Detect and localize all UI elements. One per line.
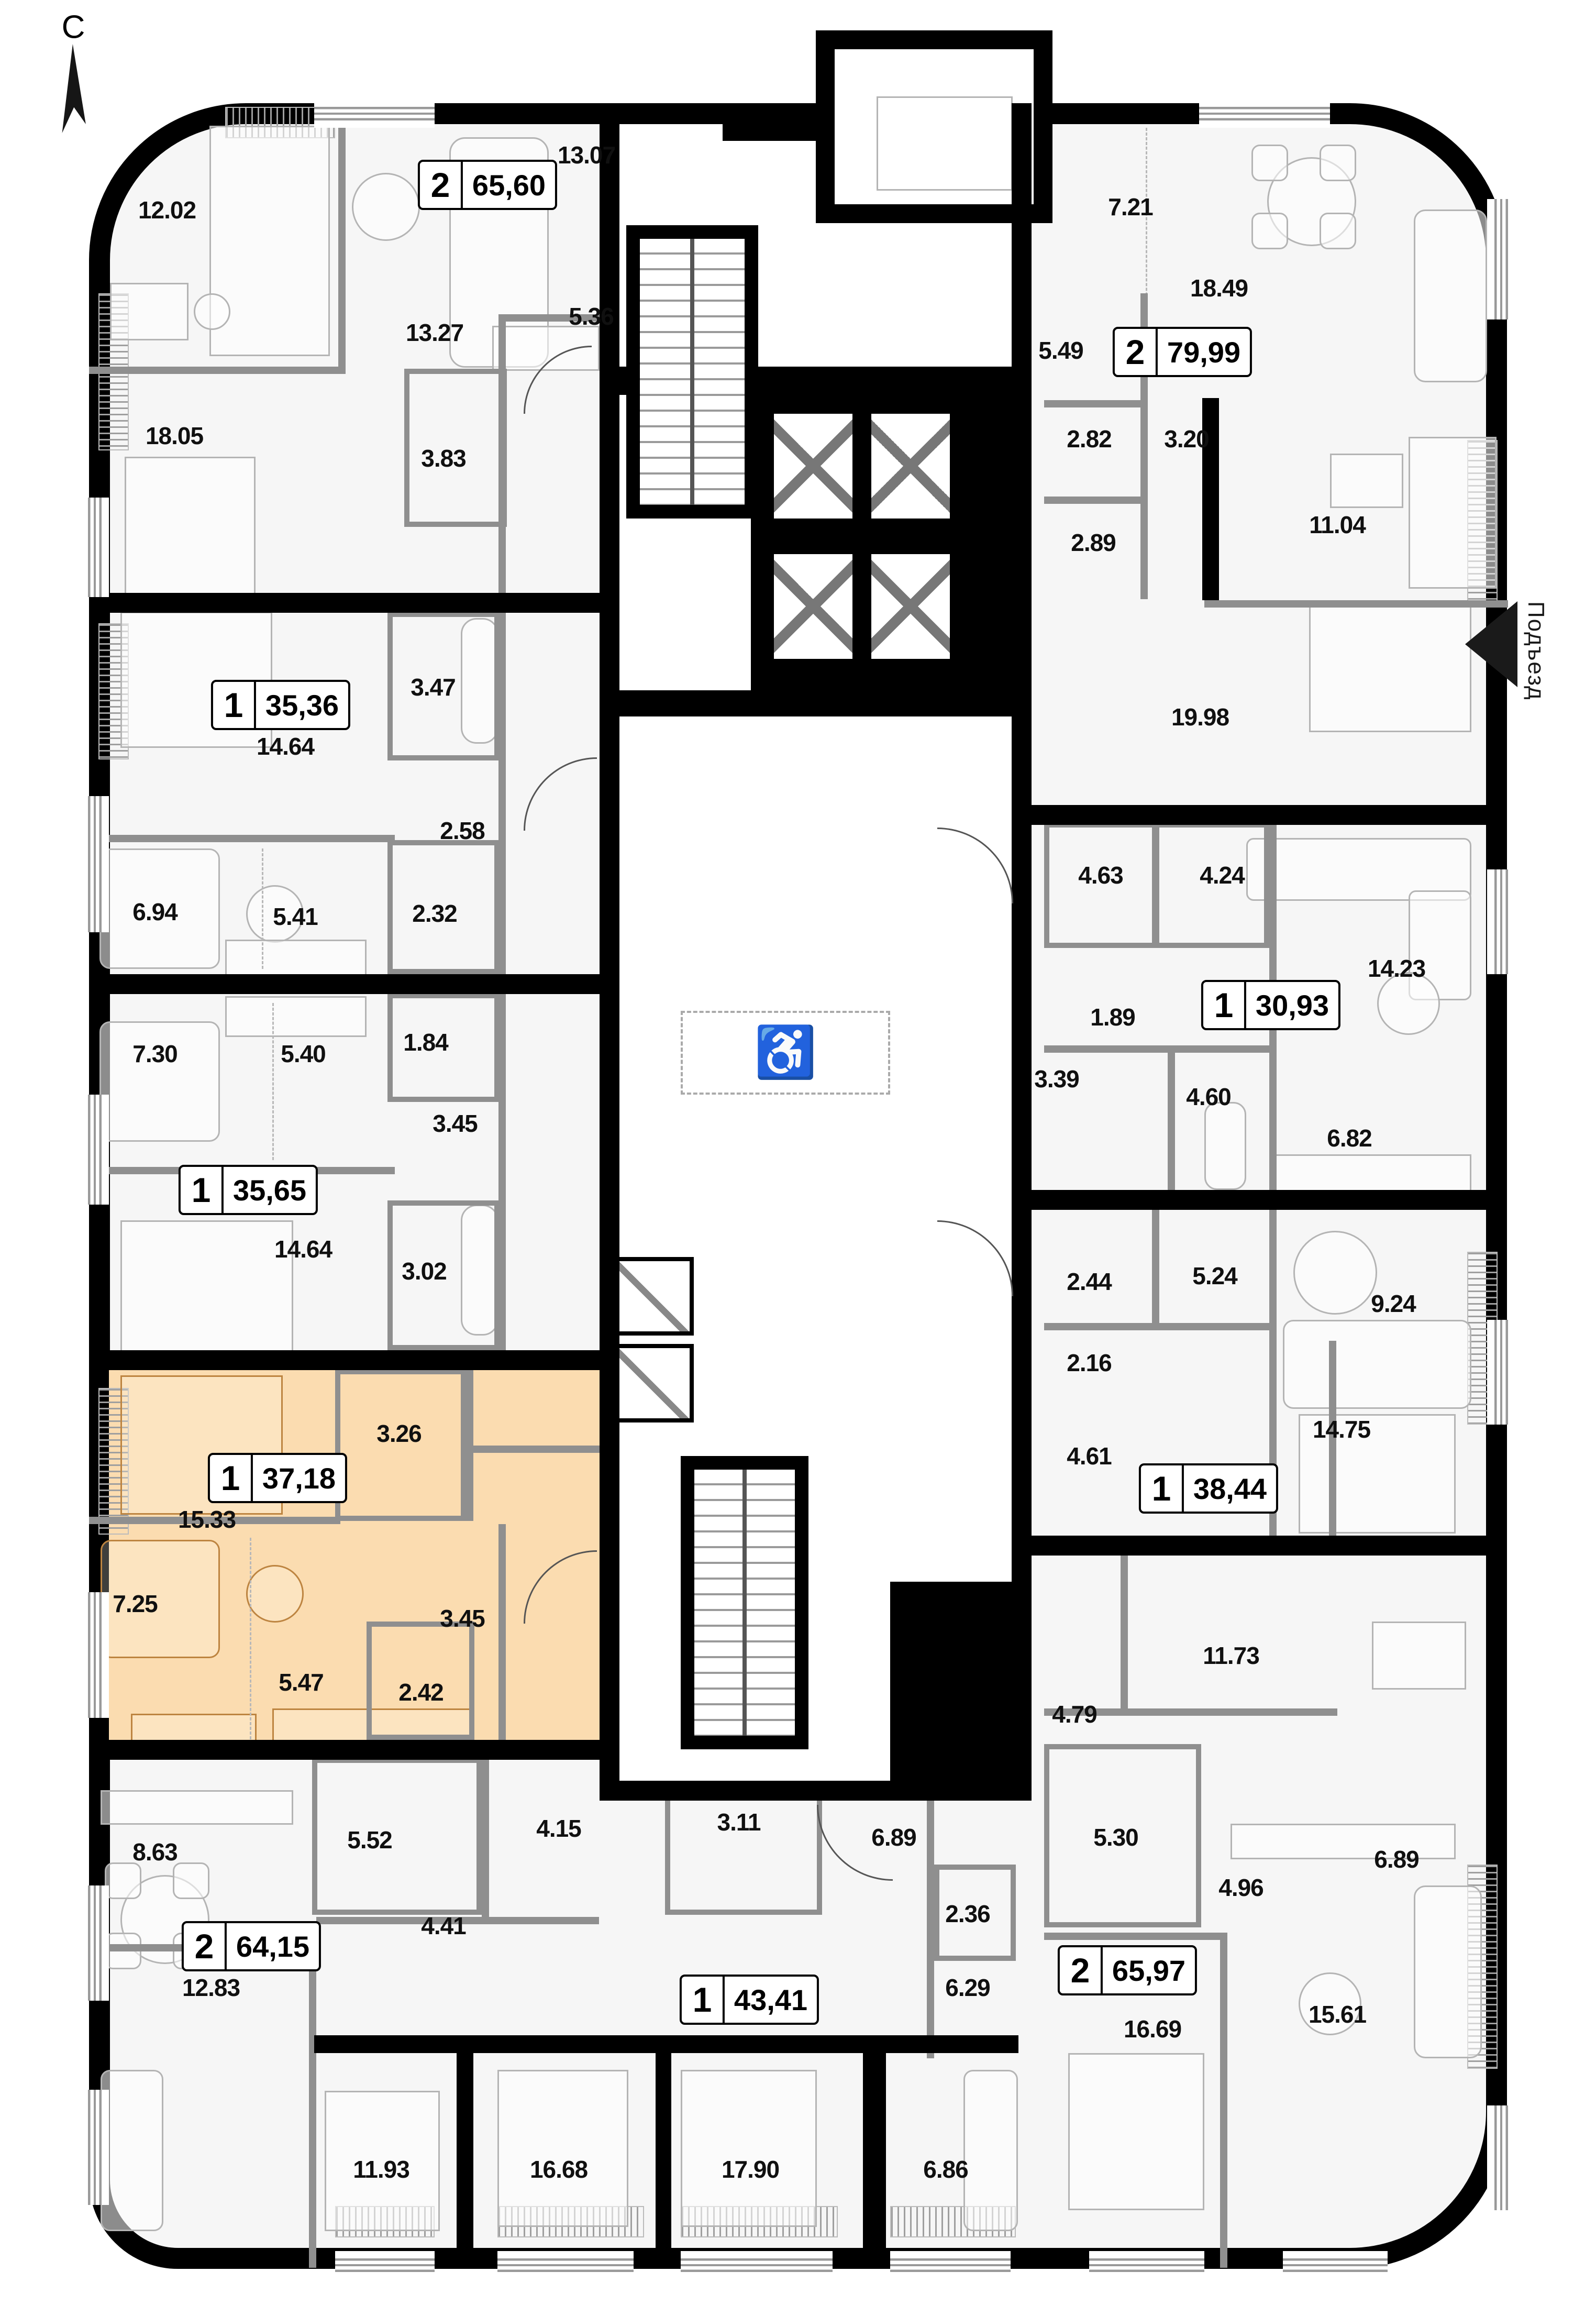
apartment-badge-apt-65-60[interactable]: 265,60 <box>418 160 557 210</box>
north-arrow-icon <box>54 44 95 133</box>
furniture-console <box>131 1714 257 1743</box>
room-count: 1 <box>1203 982 1246 1028</box>
furniture-kitchen <box>101 1790 293 1825</box>
room-area-label: 1.89 <box>1090 1003 1135 1031</box>
partition <box>1044 497 1140 504</box>
room-area-label: 15.33 <box>178 1505 236 1534</box>
window <box>1487 2105 1515 2210</box>
room-area-label: 4.61 <box>1067 1442 1112 1470</box>
elevator-car <box>871 554 950 659</box>
apartment-area: 65,97 <box>1103 1947 1195 1993</box>
floor-plan: ♿ <box>0 0 1596 2305</box>
zone-divider <box>250 1538 251 1744</box>
room-area-label: 6.89 <box>871 1823 916 1851</box>
room-area-label: 2.42 <box>398 1678 444 1706</box>
furniture-bathtub <box>1204 1102 1246 1190</box>
furniture-kitchen <box>1272 1154 1471 1193</box>
partition <box>1044 1323 1269 1330</box>
window <box>1089 2251 1204 2279</box>
core-wall <box>890 1582 1012 1781</box>
room-area-label: 9.24 <box>1371 1289 1416 1318</box>
room-area-label: 3.11 <box>717 1808 761 1836</box>
room-count: 2 <box>420 162 463 208</box>
wheelchair-turning-zone: ♿ <box>681 1011 890 1095</box>
window <box>81 796 109 932</box>
room-area-label: 2.58 <box>440 817 485 845</box>
partition <box>1220 1933 1227 2268</box>
room-area-label: 4.96 <box>1218 1873 1263 1902</box>
window <box>1283 2251 1388 2279</box>
apartment-badge-apt-37-18[interactable]: 137,18 <box>208 1453 347 1503</box>
room-area-label: 7.30 <box>132 1040 178 1068</box>
zone-divider <box>262 848 263 969</box>
furniture-desk <box>1330 454 1403 508</box>
furniture-chair <box>1251 213 1288 249</box>
room-area-label: 19.98 <box>1171 703 1229 731</box>
wall <box>656 2035 671 2269</box>
room-area-label: 8.63 <box>132 1838 178 1866</box>
furniture-bed <box>1309 600 1471 732</box>
room-area-label: 2.16 <box>1067 1349 1112 1377</box>
room-area-label: 11.73 <box>1203 1641 1259 1670</box>
room-area-label: 4.79 <box>1052 1700 1097 1728</box>
furniture-bed <box>120 1220 293 1354</box>
partition <box>927 1783 934 2058</box>
furniture-table <box>246 1565 304 1623</box>
room-area-label: 2.36 <box>945 1900 990 1928</box>
apartment-divider-wall <box>1032 1190 1507 1210</box>
north-label: С <box>62 9 85 46</box>
furniture-sofa <box>101 2070 163 2231</box>
core-right-wall <box>1012 103 1032 1801</box>
apartment-badge-apt-35-65[interactable]: 135,65 <box>179 1165 318 1215</box>
room-area-label: 16.69 <box>1124 2015 1181 2043</box>
window <box>81 1885 109 2001</box>
core-left-wall <box>600 103 619 1801</box>
room-area-label: 5.24 <box>1192 1262 1237 1290</box>
room-area-label: 4.63 <box>1078 861 1123 889</box>
furniture-sofa <box>1283 1320 1471 1409</box>
room-area-label: 3.02 <box>402 1257 447 1285</box>
apartment-divider-wall <box>1032 1536 1507 1556</box>
window <box>81 1592 109 1718</box>
furniture-bed <box>681 2070 817 2227</box>
staircase-upper <box>626 225 758 519</box>
room-count: 2 <box>1060 1947 1103 1993</box>
window <box>497 2251 634 2279</box>
window <box>1487 1320 1515 1425</box>
wall <box>863 2035 886 2269</box>
room-area-label: 2.44 <box>1067 1267 1112 1296</box>
apartment-area: 38,44 <box>1184 1465 1276 1512</box>
room-area-label: 3.45 <box>433 1109 478 1138</box>
bathroom-3-11 <box>665 1783 822 1915</box>
room-area-label: 13.07 <box>558 141 615 169</box>
apartment-divider-wall <box>1032 805 1507 825</box>
furniture-desk <box>110 283 189 340</box>
window <box>335 2251 435 2279</box>
room-count: 1 <box>210 1455 253 1501</box>
apartment-area: 65,60 <box>463 162 555 208</box>
room-area-label: 12.02 <box>138 196 196 224</box>
window <box>81 1095 109 1205</box>
room-area-label: 6.86 <box>923 2155 968 2183</box>
room-area-label: 3.47 <box>411 673 456 701</box>
apartment-badge-apt-65-97[interactable]: 265,97 <box>1058 1945 1197 1995</box>
furniture-bed <box>877 96 1013 191</box>
room-area-label: 16.68 <box>530 2155 588 2183</box>
apartment-area: 30,93 <box>1246 982 1338 1028</box>
room-area-label: 2.32 <box>412 899 457 928</box>
wall <box>457 2035 473 2269</box>
window <box>890 2251 1011 2279</box>
wall <box>723 103 820 141</box>
room-area-label: 6.89 <box>1374 1845 1419 1873</box>
apartment-area: 43,41 <box>725 1977 817 2023</box>
room-area-label: 5.30 <box>1093 1823 1138 1851</box>
apartment-divider-wall <box>89 974 601 994</box>
furniture-kitchen <box>1231 1824 1456 1859</box>
partition <box>1168 1045 1175 1190</box>
room-area-label: 7.25 <box>113 1590 158 1618</box>
room-area-label: 4.41 <box>421 1912 466 1940</box>
partition <box>89 835 395 842</box>
furniture-bed <box>497 2070 628 2227</box>
room-area-label: 18.49 <box>1190 274 1248 302</box>
partition <box>482 1758 489 1920</box>
room-area-label: 11.93 <box>353 2155 409 2183</box>
apartment-badge-apt-35-36[interactable]: 135,36 <box>211 680 350 730</box>
apartment-divider-wall <box>89 593 601 613</box>
furniture-bed <box>125 457 256 598</box>
room-area-label: 3.26 <box>376 1419 422 1448</box>
furniture-chair <box>173 1862 209 1899</box>
apartment-area: 79,99 <box>1158 329 1250 375</box>
room-count: 1 <box>682 1977 725 2023</box>
partition <box>466 1369 473 1521</box>
furniture-chair <box>1320 213 1356 249</box>
room-area-label: 5.49 <box>1038 336 1083 365</box>
room-area-label: 5.40 <box>281 1040 326 1068</box>
bathroom-5-52 <box>312 1758 482 1915</box>
apartment-badge-apt-30-93[interactable]: 130,93 <box>1201 980 1340 1030</box>
room-area-label: 15.61 <box>1309 2000 1366 2028</box>
furniture-chair <box>105 1862 141 1899</box>
apartment-area: 35,65 <box>224 1167 316 1213</box>
apartment-divider-wall <box>89 1740 601 1760</box>
partition <box>498 612 506 974</box>
room-area-label: 4.24 <box>1200 861 1245 889</box>
window <box>81 498 109 597</box>
room-area-label: 6.82 <box>1327 1124 1372 1152</box>
apartment-badge-apt-64-15[interactable]: 264,15 <box>182 1921 321 1971</box>
window <box>681 2251 833 2279</box>
window <box>314 100 435 128</box>
furniture-sofa <box>1414 209 1487 382</box>
partition <box>466 1446 600 1453</box>
room-area-label: 2.89 <box>1071 528 1116 557</box>
furniture-sofa <box>1414 1885 1482 2058</box>
partition <box>498 314 506 593</box>
room-area-label: 6.94 <box>132 898 178 926</box>
core-bottom-wall <box>600 1781 1032 1801</box>
room-count: 1 <box>181 1167 224 1213</box>
elevator-car <box>774 414 852 519</box>
room-area-label: 5.47 <box>279 1668 324 1696</box>
room-area-label: 4.60 <box>1186 1083 1231 1111</box>
apartment-divider-wall <box>89 1350 601 1370</box>
window <box>1199 100 1330 128</box>
partition <box>498 1524 506 1740</box>
apartment-badge-apt-38-44[interactable]: 138,44 <box>1139 1463 1278 1514</box>
furniture-desk <box>1372 1622 1466 1690</box>
furniture-bed <box>1068 2053 1204 2210</box>
room-count: 2 <box>1115 329 1158 375</box>
furniture-table <box>1293 1231 1377 1315</box>
partition <box>309 1944 316 2268</box>
room-area-label: 5.41 <box>273 902 318 931</box>
room-area-label: 14.75 <box>1313 1415 1370 1443</box>
room-area-label: 5.52 <box>347 1826 392 1854</box>
partition <box>498 993 506 1350</box>
window <box>1487 199 1515 319</box>
room-area-label: 12.83 <box>182 1973 240 2002</box>
window <box>1487 869 1515 974</box>
room-area-label: 3.83 <box>421 444 466 472</box>
room-area-label: 17.90 <box>722 2155 779 2183</box>
room-area-label: 3.45 <box>440 1604 485 1633</box>
zone-divider <box>272 1003 274 1160</box>
room-count: 1 <box>1141 1465 1184 1512</box>
room-count: 1 <box>213 682 256 728</box>
furniture-chair <box>1251 145 1288 181</box>
partition <box>89 367 346 374</box>
apartment-badge-apt-43-41[interactable]: 143,41 <box>680 1975 819 2025</box>
furniture-chair <box>194 293 230 330</box>
partition <box>1044 400 1140 407</box>
elevator-car <box>871 414 950 519</box>
furniture-bed <box>209 126 330 356</box>
room-count: 2 <box>184 1923 227 1969</box>
room-area-label: 4.15 <box>536 1814 581 1843</box>
furniture-table <box>352 173 420 241</box>
apartment-area: 37,18 <box>253 1455 345 1501</box>
room-area-label: 14.23 <box>1368 954 1425 983</box>
apartment-area: 64,15 <box>227 1923 319 1969</box>
room-area-label: 2.82 <box>1067 425 1112 453</box>
room-area-label: 5.36 <box>569 302 614 330</box>
room-area-label: 3.20 <box>1164 425 1209 453</box>
partition <box>1152 1205 1159 1325</box>
partition <box>338 122 346 372</box>
room-area-label: 7.21 <box>1108 193 1153 221</box>
room-area-label: 13.27 <box>406 318 463 347</box>
partition <box>1044 1933 1222 1940</box>
furniture-sofa <box>963 2070 1018 2231</box>
core-wall <box>618 690 1012 716</box>
room-area-label: 6.29 <box>945 1973 990 2002</box>
accessible-icon: ♿ <box>754 1023 817 1082</box>
furniture-chair <box>1320 145 1356 181</box>
apartment-area: 35,36 <box>256 682 348 728</box>
room-area-label: 14.64 <box>257 732 314 760</box>
elevator-car <box>774 554 852 659</box>
room-area-label: 14.64 <box>274 1235 332 1263</box>
window <box>81 2090 109 2205</box>
apartment-badge-apt-79-99[interactable]: 279,99 <box>1113 327 1252 377</box>
room-area-label: 11.04 <box>1309 511 1366 539</box>
entrance-label: Подъезд <box>1523 601 1549 701</box>
partition <box>1204 600 1508 608</box>
furniture-kitchen <box>225 996 367 1037</box>
furniture-bed <box>1409 437 1497 589</box>
room-area-label: 18.05 <box>146 422 203 450</box>
partition <box>1044 1045 1269 1053</box>
partition <box>1121 1550 1128 1712</box>
staircase-lower <box>681 1456 808 1749</box>
room-area-label: 3.39 <box>1034 1065 1079 1093</box>
room-area-label: 1.84 <box>403 1028 448 1056</box>
partition <box>1152 822 1159 948</box>
